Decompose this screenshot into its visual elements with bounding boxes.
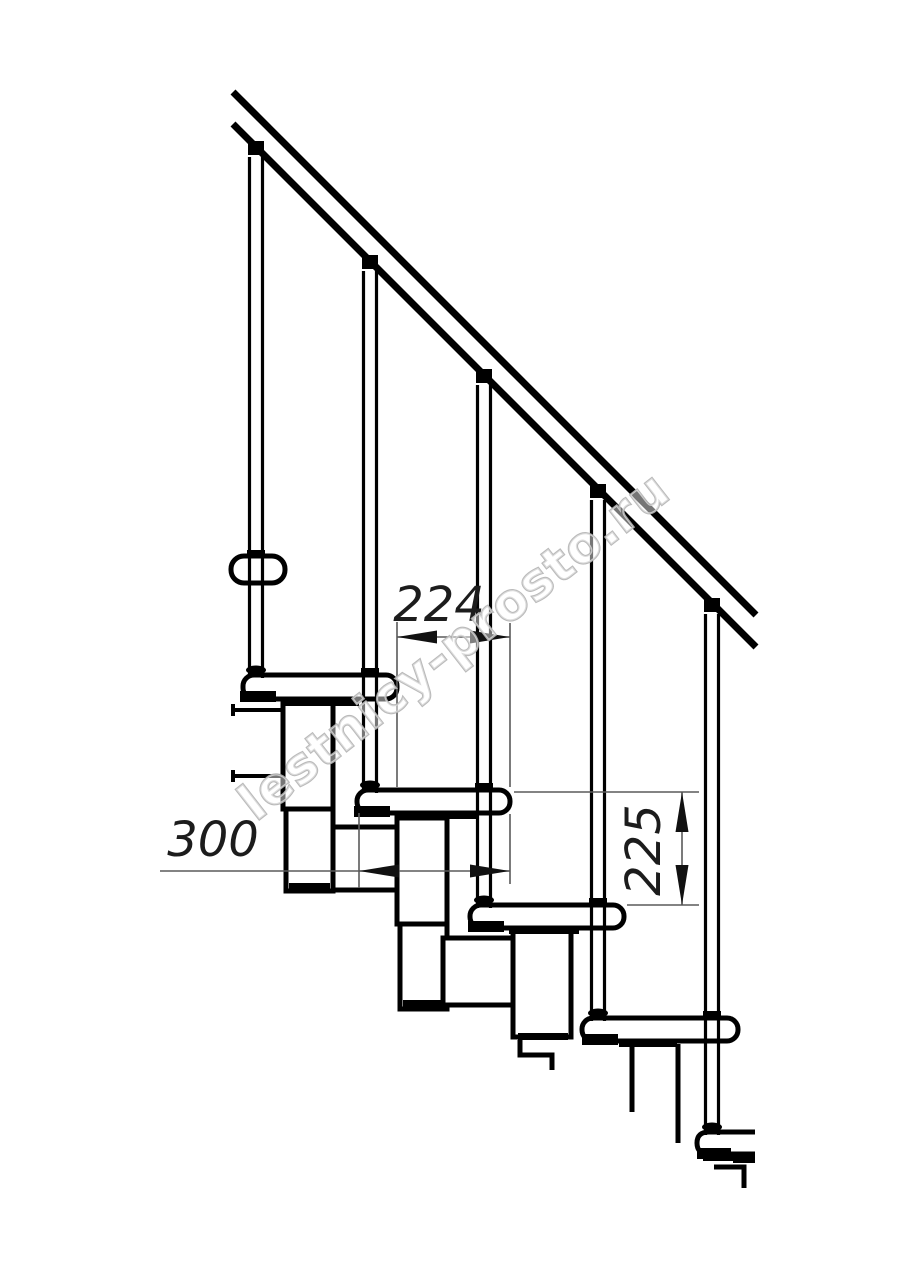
tread-fastener	[468, 921, 504, 932]
baluster-collar	[246, 666, 266, 675]
drawing-canvas: 224 300 225 lestnicy-prosto.ru	[0, 0, 914, 1280]
module-box	[513, 930, 571, 1037]
baluster-clamp	[703, 1011, 721, 1019]
module-joint	[403, 1000, 444, 1009]
arrow-down	[676, 865, 689, 905]
tread-5	[697, 1132, 755, 1163]
handrail-bracket	[231, 556, 285, 583]
tread-shadow	[395, 812, 477, 819]
dimension-value: 225	[616, 804, 672, 896]
module-box	[286, 809, 333, 891]
baluster-clamp	[247, 550, 265, 558]
tread-4	[582, 1018, 738, 1047]
module-cut-step	[520, 1040, 552, 1070]
module-square	[443, 938, 518, 1005]
baluster-collar	[702, 1123, 722, 1132]
tread-shadow	[733, 1155, 755, 1163]
tread-shadow	[509, 927, 579, 934]
baluster-clamp	[475, 783, 493, 791]
baluster-1	[246, 141, 266, 678]
module-joint	[518, 1033, 568, 1040]
tread-2	[354, 790, 510, 819]
module-square	[333, 827, 402, 890]
tread-3	[468, 905, 624, 934]
tread-shadow	[619, 1040, 677, 1047]
handrail-top-line	[233, 92, 756, 615]
module-joint	[289, 883, 330, 891]
dimension-value: 300	[167, 812, 259, 868]
module-box	[400, 924, 447, 1009]
staircase-technical-drawing: 224 300 225 lestnicy-prosto.ru	[0, 0, 914, 1280]
watermark-text: lestnicy-prosto.ru	[228, 460, 681, 832]
handrail	[233, 92, 756, 647]
arrow-up	[676, 792, 689, 832]
baluster-collar	[474, 896, 494, 905]
baluster-collar	[588, 1009, 608, 1018]
baluster-clamp	[589, 898, 607, 906]
tread-fastener	[240, 691, 276, 702]
dimension-225: 225	[514, 792, 699, 905]
module-cut-step	[714, 1167, 744, 1188]
baluster-collar	[360, 781, 380, 790]
tread-fastener	[582, 1034, 618, 1045]
handrail-bottom-line	[233, 124, 756, 647]
baluster-5	[702, 598, 722, 1135]
